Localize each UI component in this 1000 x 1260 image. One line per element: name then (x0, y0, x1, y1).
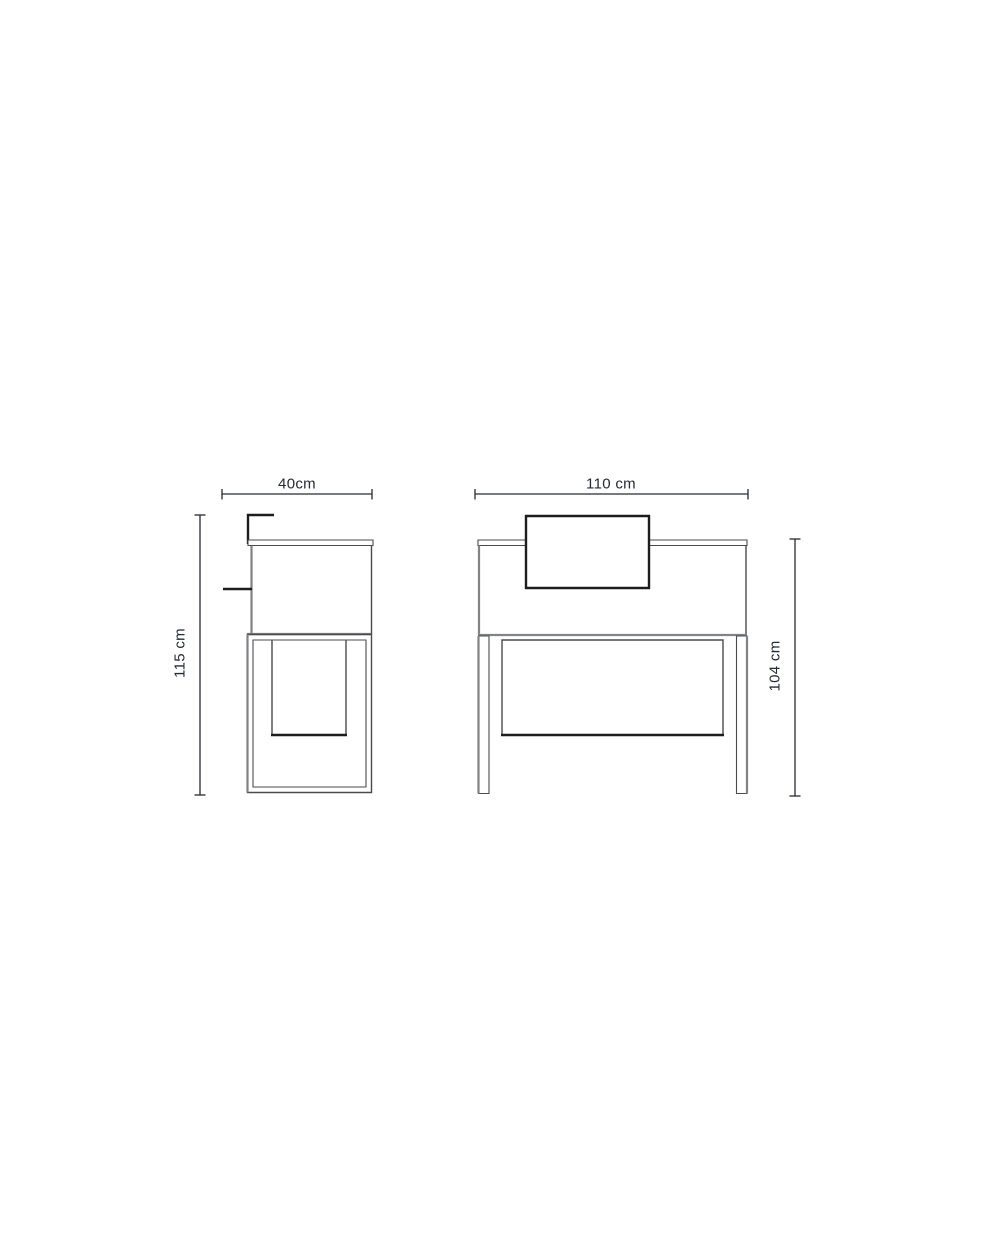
side-width-dimension: 40cm (222, 476, 372, 500)
front-height-label: 104 cm (767, 641, 784, 692)
side-width-label: 40cm (278, 476, 316, 493)
front-width-dimension: 110 cm (475, 476, 748, 500)
front-sign-panel (526, 516, 649, 588)
front-height-dimension: 104 cm (767, 539, 801, 796)
furniture-dimension-drawing: 40cm 115 cm (0, 0, 1000, 1260)
side-height-dimension: 115 cm (172, 515, 206, 795)
side-view: 40cm 115 cm (172, 476, 374, 796)
front-view: 110 cm 104 cm (475, 476, 801, 797)
side-counter-top-strip (248, 540, 373, 546)
side-leg-frame-inner (253, 640, 366, 787)
front-leg-left (479, 636, 490, 794)
front-width-label: 110 cm (586, 476, 636, 493)
side-hanging-panel (272, 640, 346, 735)
side-leg-frame-outer (248, 635, 372, 793)
front-modesty-panel (502, 640, 723, 735)
front-leg-right (737, 636, 748, 794)
side-height-label: 115 cm (172, 628, 189, 678)
technical-drawing-page: 40cm 115 cm (0, 0, 1000, 1260)
